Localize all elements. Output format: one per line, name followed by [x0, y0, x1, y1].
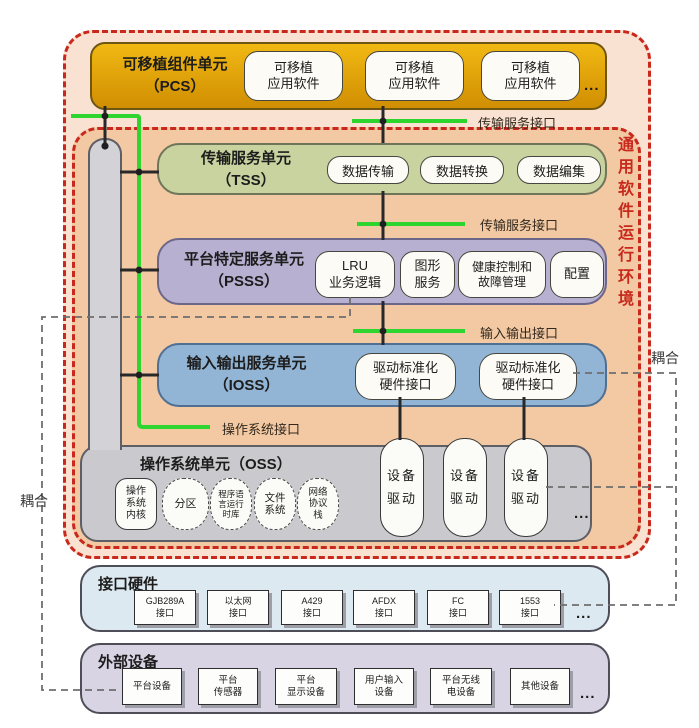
ioss-unit: 输入输出服务单元 （IOSS） 驱动标准化 硬件接口 驱动标准化 硬件接口	[157, 343, 607, 407]
psss-unit: 平台特定服务单元 （PSSS） LRU 业务逻辑 图形 服务 健康控制和 故障管…	[157, 238, 607, 305]
io-interface-label: 输入输出接口	[480, 323, 558, 342]
ioss-item-driver-iface-2: 驱动标准化 硬件接口	[479, 353, 577, 400]
coupling-label-right: 耦合	[651, 348, 679, 368]
portable-app-2: 可移植 应用软件	[365, 51, 464, 101]
interface-hardware-unit: 接口硬件 GJB289A 接口 以太网 接口 A429 接口 AFDX 接口 F…	[80, 565, 610, 632]
hw-item-gjb289a: GJB289A 接口	[134, 590, 196, 625]
hw-ellipsis: ...	[576, 605, 592, 622]
ext-item-platform-sensor: 平台 传感器	[198, 668, 258, 705]
tss-unit: 传输服务单元 （TSS） 数据传输 数据转换 数据编集	[157, 143, 607, 195]
transport-interface-label-top: 传输服务接口	[478, 113, 556, 132]
oss-item-file-system: 文件 系统	[254, 478, 296, 530]
ext-item-other-device: 其他设备	[510, 668, 570, 705]
pcs-title: 可移植组件单元 （PCS）	[100, 54, 250, 98]
device-driver-2: 设备 驱动	[443, 438, 487, 537]
architecture-diagram: 操作系统单元（OSS） 操作 系统 内核 分区 程序语 言运行 时库 文件 系统…	[0, 0, 699, 728]
runtime-environment-label: 通用软件运行环境	[611, 136, 635, 312]
tss-item-data-transfer: 数据传输	[327, 156, 409, 184]
hw-item-fc: FC 接口	[427, 590, 489, 625]
tss-item-data-convert: 数据转换	[420, 156, 504, 184]
ext-item-platform-device: 平台设备	[122, 668, 182, 705]
oss-item-network-stack: 网络 协议 栈	[297, 478, 339, 530]
oss-title: 操作系统单元（OSS）	[140, 453, 292, 474]
psss-item-health-fault: 健康控制和 故障管理	[458, 251, 546, 298]
tss-item-data-edit: 数据编集	[517, 156, 601, 184]
portable-app-3: 可移植 应用软件	[481, 51, 580, 101]
oss-item-runtime-lib: 程序语 言运行 时库	[210, 478, 252, 530]
hw-item-1553: 1553 接口	[499, 590, 561, 625]
psss-title: 平台特定服务单元 （PSSS）	[164, 249, 324, 293]
psss-item-lru-logic: LRU 业务逻辑	[315, 251, 395, 298]
device-driver-1: 设备 驱动	[380, 438, 424, 537]
coupling-label-left: 耦合	[20, 491, 48, 511]
hw-item-ethernet: 以太网 接口	[207, 590, 269, 625]
portable-app-1: 可移植 应用软件	[244, 51, 343, 101]
oss-item-partition: 分区	[162, 478, 209, 530]
tss-title: 传输服务单元 （TSS）	[171, 148, 321, 192]
ext-item-platform-display: 平台 显示设备	[275, 668, 337, 705]
oss-bus-capsule	[88, 138, 122, 450]
external-devices-unit: 外部设备 平台设备 平台 传感器 平台 显示设备 用户输入 设备 平台无线 电设…	[80, 643, 610, 714]
ioss-title: 输入输出服务单元 （IOSS）	[164, 353, 329, 397]
psss-item-config: 配置	[550, 251, 604, 298]
transport-interface-label-mid: 传输服务接口	[480, 215, 558, 234]
psss-item-graphics: 图形 服务	[400, 251, 455, 298]
oss-ellipsis: ...	[574, 505, 590, 522]
hw-item-a429: A429 接口	[281, 590, 343, 625]
pcs-ellipsis: ...	[584, 77, 600, 94]
device-driver-3: 设备 驱动	[504, 438, 548, 537]
hw-item-afdx: AFDX 接口	[353, 590, 415, 625]
pcs-unit: 可移植组件单元 （PCS） 可移植 应用软件 可移植 应用软件 可移植 应用软件…	[90, 42, 607, 110]
ioss-item-driver-iface-1: 驱动标准化 硬件接口	[355, 353, 456, 400]
os-interface-label: 操作系统接口	[222, 419, 300, 438]
ext-item-user-input: 用户输入 设备	[354, 668, 414, 705]
oss-item-kernel: 操作 系统 内核	[115, 478, 157, 530]
ext-item-platform-radio: 平台无线 电设备	[430, 668, 492, 705]
ext-ellipsis: ...	[580, 685, 596, 702]
